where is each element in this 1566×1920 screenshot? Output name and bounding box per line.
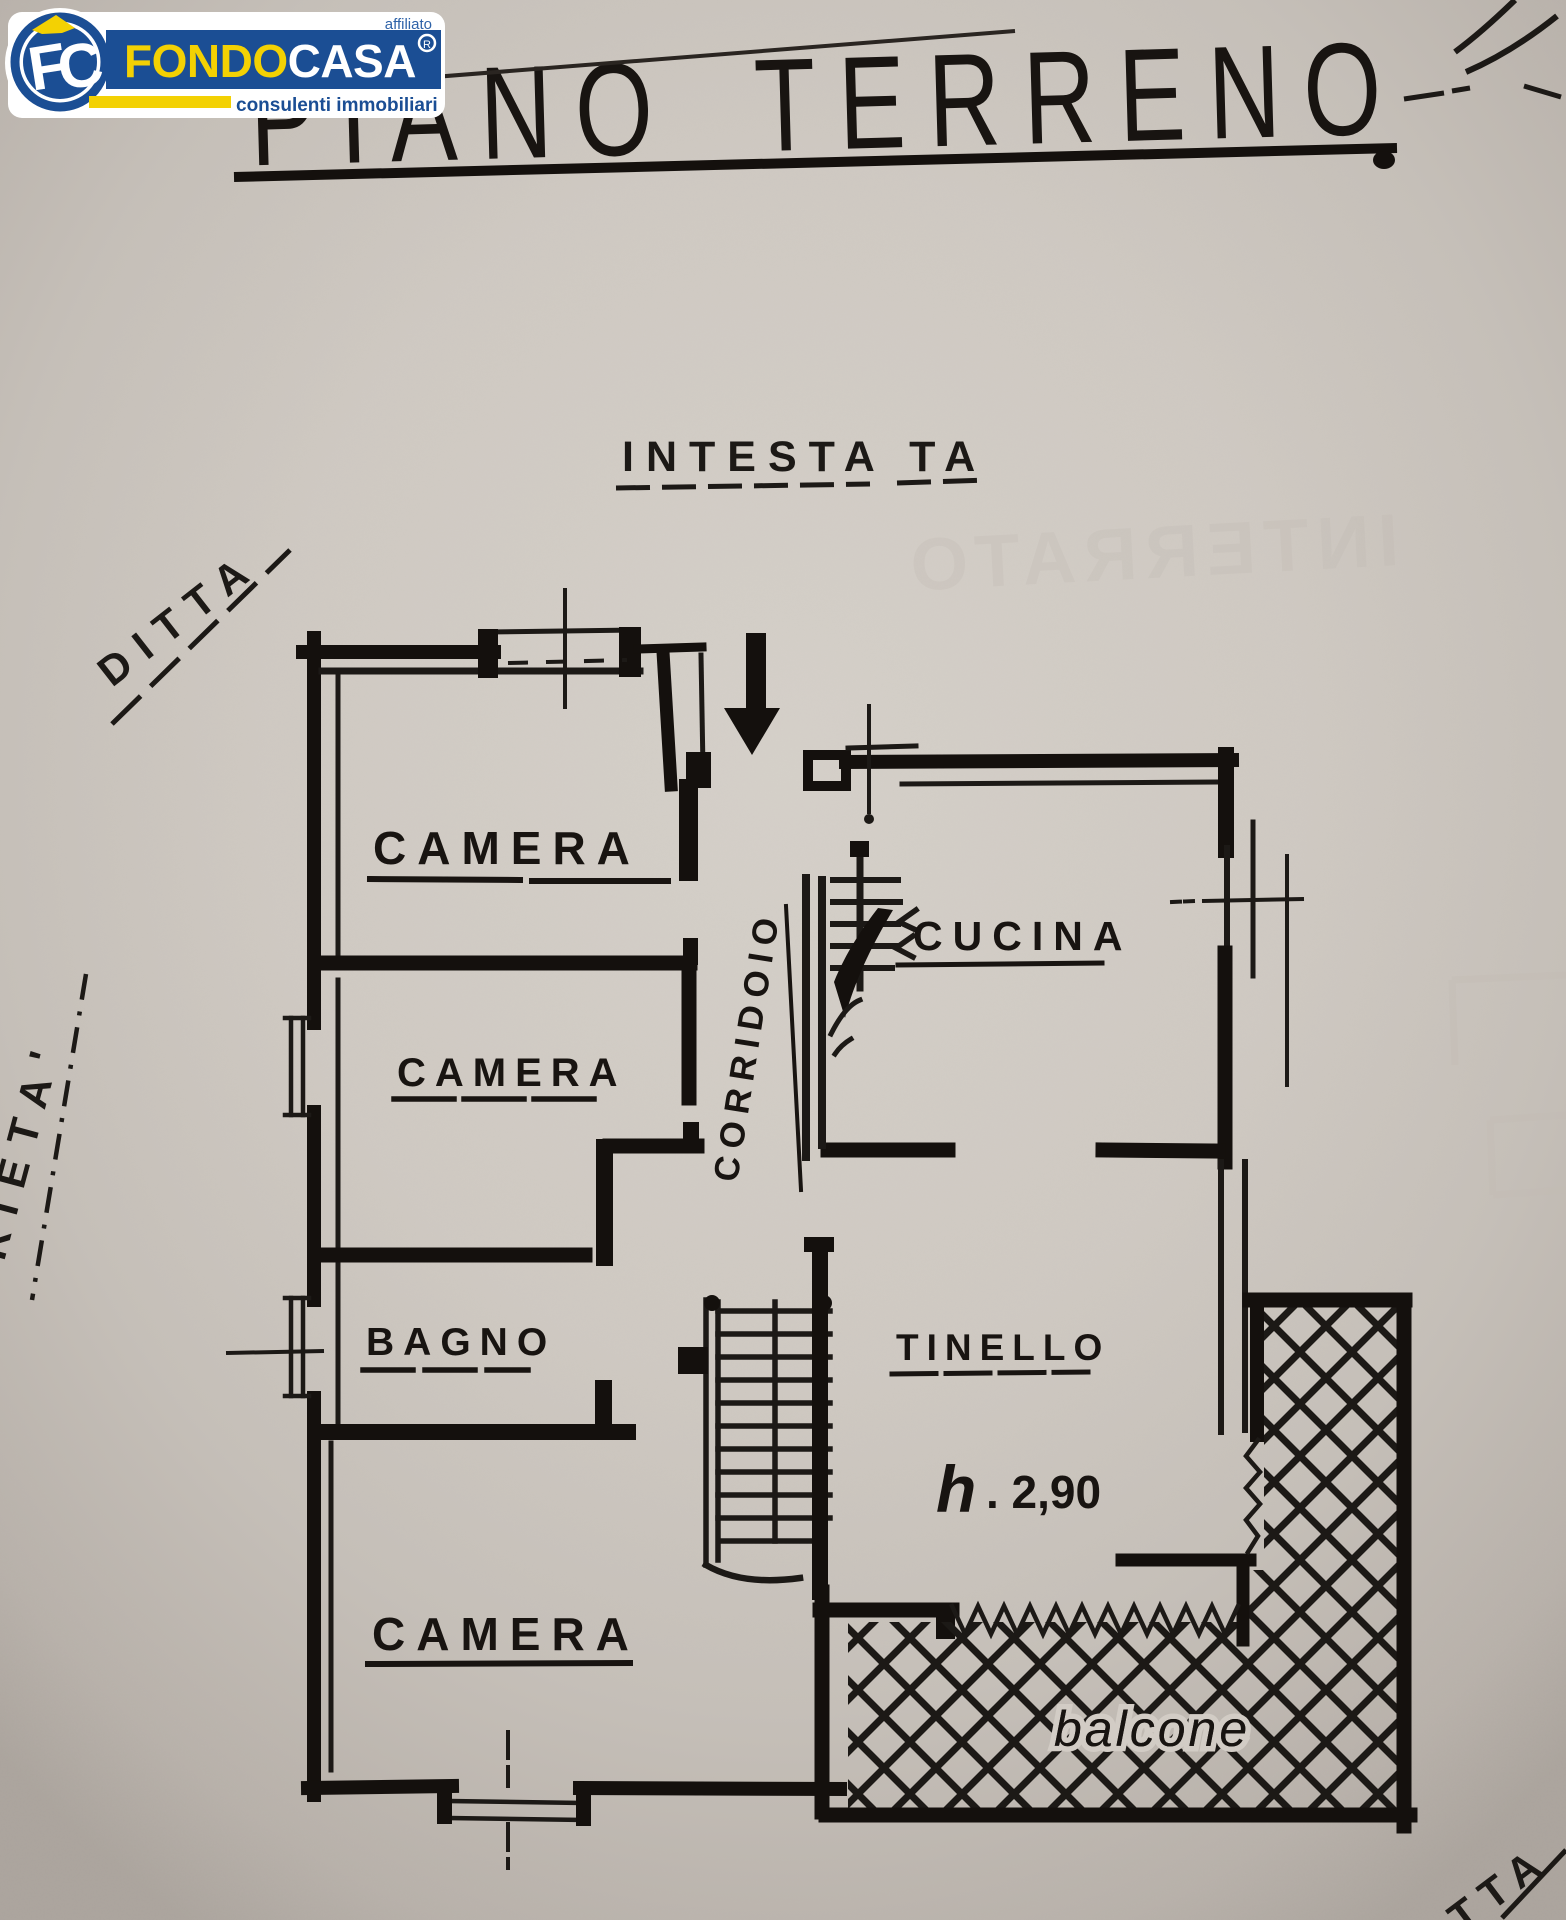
svg-text:balcone: balcone [1054,1701,1250,1757]
svg-text:h: h [936,1452,976,1526]
svg-text:FONDOCASA: FONDOCASA [124,35,416,87]
svg-text:BAGNO: BAGNO [366,1321,556,1364]
svg-text:INTESTA TA: INTESTA TA [622,433,987,481]
svg-text:DITTA: DITTA [89,541,268,695]
svg-text:CAMERA: CAMERA [397,1051,627,1095]
svg-text:CAMERA: CAMERA [372,1608,640,1660]
svg-text:affiliato: affiliato [385,16,432,33]
svg-text:consulenti immobiliari: consulenti immobiliari [236,95,438,116]
svg-text:RIETA': RIETA' [0,1031,72,1264]
svg-text:. 2,90: . 2,90 [986,1466,1101,1518]
svg-text:R: R [423,39,431,51]
svg-text:INTERRATO: INTERRATO [900,498,1400,607]
svg-text:CUCINA: CUCINA [913,913,1132,959]
svg-text:CORRIDOIO: CORRIDOIO [706,907,787,1184]
svg-text:CAMERA: CAMERA [373,822,641,874]
svg-text:TINELLO: TINELLO [896,1327,1110,1368]
